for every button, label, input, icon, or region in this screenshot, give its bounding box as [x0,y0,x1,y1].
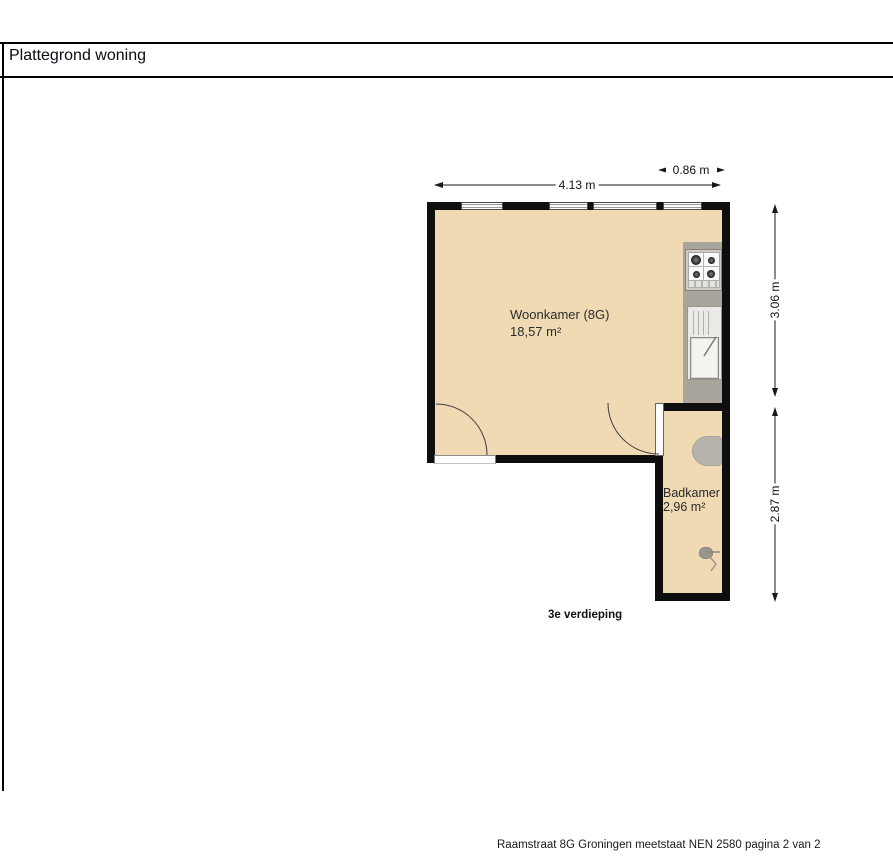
burner-icon [707,270,715,278]
stove-controls [688,280,720,288]
sink-icon [687,306,722,380]
toilet-icon [692,436,723,466]
window-icon [461,202,503,210]
page-frame-left-line [2,42,4,791]
dimension-label-height-upper: 3.06 m [768,280,782,321]
burner-icon [708,257,715,264]
window-icon [549,202,588,210]
door-leaf-badkamer [655,403,664,456]
door-leaf-woonkamer [434,455,496,464]
room-name-badkamer: Badkamer [663,486,720,500]
wall-right [722,202,730,601]
wall-badkamer-top [664,403,722,411]
window-icon [663,202,702,210]
wall-badkamer-left [655,455,663,601]
dimension-label-height-lower: 2.87 m [768,484,782,525]
stove-burner-panel [688,252,720,282]
room-area-badkamer: 2,96 m² [663,500,705,514]
shower-icon [699,547,713,559]
window-icon [593,202,657,210]
wall-left [427,202,435,463]
floor-level-label: 3e verdieping [548,609,622,621]
drainboard-icon [693,311,710,335]
dimension-label-width-main: 4.13 m [556,178,599,192]
room-name-woonkamer: Woonkamer (8G) [510,307,609,322]
burner-icon [691,255,701,265]
stove-icon [685,249,722,291]
page-title: Plattegrond woning [9,47,146,65]
page-footer: Raamstraat 8G Groningen meetstaat NEN 25… [497,839,820,851]
dimension-label-width-right: 0.86 m [670,163,713,177]
page-frame-divider-line [0,76,893,78]
wall-badkamer-bottom [655,593,730,601]
burner-icon [693,271,700,278]
room-area-woonkamer: 18,57 m² [510,324,561,339]
page-frame-top-line [0,42,893,44]
sink-bowl-icon [690,337,719,379]
